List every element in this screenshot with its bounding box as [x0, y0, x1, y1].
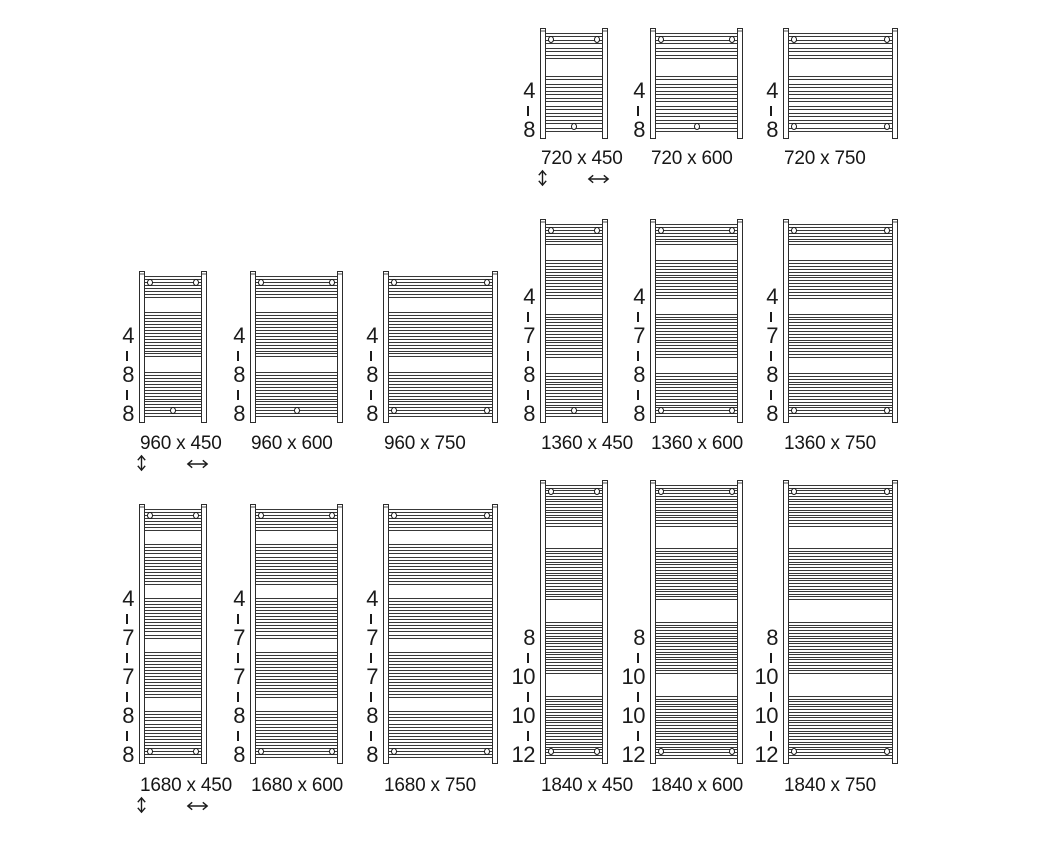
- bar-count-label: 4: [86, 324, 134, 348]
- wall-bracket-icon: [791, 36, 797, 43]
- group-separator-dash: [370, 614, 373, 624]
- rung-bar: [145, 527, 201, 531]
- tube-left: [540, 28, 546, 139]
- rung-bar: [789, 295, 892, 299]
- rung-bar: [546, 295, 602, 299]
- rung-bar: [546, 260, 602, 264]
- rung-bar: [256, 544, 337, 548]
- rung-bar: [145, 312, 201, 316]
- bar-count-label: 7: [86, 626, 134, 650]
- rung-bar: [256, 348, 337, 352]
- rung-bar: [789, 517, 892, 521]
- rung-bar: [389, 544, 492, 548]
- rung-bar: [389, 372, 492, 376]
- rung-bar: [389, 610, 492, 614]
- bar-count-label: 8: [730, 626, 778, 650]
- rung-bar: [789, 591, 892, 595]
- rung-bar: [256, 336, 337, 340]
- rung-bar: [546, 84, 602, 88]
- rung-bar: [546, 373, 602, 377]
- wall-bracket-icon: [571, 407, 577, 414]
- rung-bar: [256, 652, 337, 656]
- rung-bar: [389, 724, 492, 728]
- rung-bar: [145, 372, 201, 376]
- rung-bar: [789, 553, 892, 557]
- rung-bar: [256, 569, 337, 573]
- rung-bar: [145, 288, 201, 292]
- rung-bar: [656, 295, 737, 299]
- rung-bar: [656, 266, 737, 270]
- rung-bar: [145, 616, 201, 620]
- bar-count-column: 488: [330, 271, 378, 423]
- rung-bar: [656, 384, 737, 388]
- rung-bar: [546, 266, 602, 270]
- radiator-960x750: [383, 271, 498, 423]
- rung-bar: [256, 342, 337, 346]
- rung-bar: [256, 372, 337, 376]
- rung-bar: [256, 742, 337, 746]
- rung-bar: [546, 396, 602, 400]
- rung-bar: [656, 501, 737, 505]
- bar-count-label: 10: [730, 665, 778, 689]
- bar-count-column: 488: [86, 271, 134, 423]
- bar-count-label: 8: [330, 704, 378, 728]
- rung-bar: [789, 749, 892, 753]
- size-label: 1360 x 600: [651, 433, 743, 455]
- rung-bar: [546, 496, 602, 500]
- rung-bar: [656, 407, 737, 411]
- rung-bar: [389, 682, 492, 686]
- rung-bar: [145, 276, 201, 280]
- rung-bar: [789, 277, 892, 281]
- rung-bar: [656, 722, 737, 726]
- rung-bar: [789, 570, 892, 574]
- bar-count-label: 4: [597, 79, 645, 103]
- rung-bar: [145, 544, 201, 548]
- rung-bar: [546, 596, 602, 600]
- group-separator-dash: [770, 692, 773, 702]
- rung-bar: [789, 106, 892, 110]
- rung-bar: [256, 527, 337, 531]
- rung-bar: [145, 413, 201, 417]
- bar-count-label: 4: [330, 587, 378, 611]
- rung-bar: [656, 638, 737, 642]
- wall-bracket-icon: [658, 36, 664, 43]
- bar-count-column: 8101012: [487, 480, 535, 764]
- rung-bar: [789, 638, 892, 642]
- size-label: 1840 x 450: [541, 775, 633, 797]
- rung-bar: [789, 48, 892, 52]
- tube-left: [139, 271, 145, 423]
- bar-count-label: 12: [597, 743, 645, 767]
- rung-bar: [145, 730, 201, 734]
- rung-bar: [145, 622, 201, 626]
- wall-bracket-icon: [258, 748, 264, 755]
- rung-bar: [389, 598, 492, 602]
- rung-bar: [656, 665, 737, 669]
- group-separator-dash: [527, 653, 530, 663]
- wall-bracket-icon: [391, 748, 397, 755]
- tube-cap: [784, 221, 788, 223]
- rung-bar: [656, 283, 737, 287]
- rung-bar: [546, 402, 602, 406]
- wall-bracket-icon: [391, 512, 397, 519]
- rung-bar: [656, 733, 737, 737]
- wall-bracket-icon: [884, 227, 890, 234]
- size-label: 720 x 750: [784, 148, 866, 170]
- bar-count-label: 7: [597, 324, 645, 348]
- tube-cap: [251, 273, 255, 275]
- rung-bar: [789, 596, 892, 600]
- bar-count-column: 8101012: [730, 480, 778, 764]
- tube-left: [650, 480, 656, 764]
- rung-bar: [656, 575, 737, 579]
- rung-bar: [656, 485, 737, 489]
- bar-count-label: 8: [730, 118, 778, 142]
- rung-bar: [546, 728, 602, 732]
- bar-count-label: 8: [487, 626, 535, 650]
- rung-bar: [546, 485, 602, 489]
- wall-bracket-icon: [694, 123, 700, 130]
- bar-count-label: 8: [487, 118, 535, 142]
- rung-bar: [546, 501, 602, 505]
- rung-bar: [389, 312, 492, 316]
- group-separator-dash: [237, 351, 240, 361]
- rung-bar: [789, 384, 892, 388]
- rung-bar: [789, 84, 892, 88]
- bar-count-label: 8: [597, 626, 645, 650]
- rung-bar: [389, 730, 492, 734]
- rung-bar: [256, 628, 337, 632]
- rung-bar: [145, 509, 201, 513]
- rung-bar: [789, 314, 892, 318]
- rung-bar: [789, 230, 892, 234]
- rung-bar: [656, 717, 737, 721]
- rung-bar: [256, 401, 337, 405]
- diagram-stage: 48720 x 45048720 x 60048720 x 750488960 …: [0, 0, 1044, 854]
- tube-cap: [541, 221, 545, 223]
- rung-bar: [656, 40, 737, 44]
- rung-bar: [389, 569, 492, 573]
- group-separator-dash: [237, 390, 240, 400]
- group-separator-dash: [637, 312, 640, 322]
- rung-bar: [389, 676, 492, 680]
- width-arrow-icon: [587, 173, 610, 185]
- rung-bar: [389, 581, 492, 585]
- rung-bar: [389, 694, 492, 698]
- rung-bar: [145, 676, 201, 680]
- rung-bar: [656, 591, 737, 595]
- rung-bar: [789, 55, 892, 59]
- rung-bar: [546, 106, 602, 110]
- rung-bar: [256, 550, 337, 554]
- height-arrow-icon: [536, 169, 549, 187]
- rung-bar: [256, 515, 337, 519]
- rung-bar: [145, 348, 201, 352]
- bar-count-label: 10: [597, 704, 645, 728]
- rung-bar: [789, 512, 892, 516]
- wall-bracket-icon: [884, 488, 890, 495]
- bar-count-label: 10: [487, 704, 535, 728]
- rung-bar: [256, 616, 337, 620]
- rung-bar: [546, 654, 602, 658]
- rung-bar: [145, 652, 201, 656]
- rung-bar: [656, 670, 737, 674]
- rung-bar: [546, 712, 602, 716]
- bar-count-label: 4: [487, 79, 535, 103]
- size-label: 960 x 750: [384, 433, 466, 455]
- tube-cap: [651, 482, 655, 484]
- rung-bar: [145, 717, 201, 721]
- size-label: 1360 x 450: [541, 433, 633, 455]
- size-label: 720 x 600: [651, 148, 733, 170]
- rung-bar: [789, 654, 892, 658]
- rung-bar: [656, 241, 737, 245]
- rung-bar: [789, 701, 892, 705]
- rung-bar: [789, 325, 892, 329]
- rung-bar: [546, 701, 602, 705]
- rung-bar: [656, 76, 737, 80]
- group-separator-dash: [527, 390, 530, 400]
- rung-bar: [789, 91, 892, 95]
- rung-bar: [256, 604, 337, 608]
- rung-bar: [389, 407, 492, 411]
- rung-bar: [789, 728, 892, 732]
- rung-bar: [789, 337, 892, 341]
- rung-bar: [546, 517, 602, 521]
- rung-bar: [389, 742, 492, 746]
- rung-bar: [256, 688, 337, 692]
- rung-bar: [789, 120, 892, 124]
- rung-bar: [656, 236, 737, 240]
- tube-cap: [784, 30, 788, 32]
- bar-count-label: 10: [597, 665, 645, 689]
- rung-bar: [656, 33, 737, 37]
- rung-bar: [389, 550, 492, 554]
- rung-bar: [656, 633, 737, 637]
- group-separator-dash: [527, 312, 530, 322]
- group-separator-dash: [637, 390, 640, 400]
- rung-bar: [145, 724, 201, 728]
- bar-count-label: 8: [86, 743, 134, 767]
- rung-bar: [389, 396, 492, 400]
- rung-bar: [546, 277, 602, 281]
- rung-bar: [145, 390, 201, 394]
- wall-bracket-icon: [571, 123, 577, 130]
- rung-bar: [546, 638, 602, 642]
- tube-right: [892, 219, 898, 423]
- group-separator-dash: [126, 731, 129, 741]
- bar-count-column: 48: [730, 28, 778, 139]
- rung-bar: [789, 575, 892, 579]
- rung-bar: [145, 336, 201, 340]
- rung-bar: [656, 413, 737, 417]
- group-separator-dash: [637, 106, 640, 116]
- tube-cap: [893, 482, 897, 484]
- rung-bar: [389, 688, 492, 692]
- rung-bar: [256, 610, 337, 614]
- wall-bracket-icon: [791, 123, 797, 130]
- rung-bar: [546, 48, 602, 52]
- rung-bar: [389, 318, 492, 322]
- radiator-1840x750: [783, 480, 898, 764]
- size-label: 1840 x 600: [651, 775, 743, 797]
- bar-count-label: 4: [86, 587, 134, 611]
- rung-bar: [546, 733, 602, 737]
- bar-count-label: 8: [197, 704, 245, 728]
- rung-bar: [145, 324, 201, 328]
- rung-bar: [656, 48, 737, 52]
- bar-count-label: 10: [487, 665, 535, 689]
- bar-count-label: 8: [597, 402, 645, 426]
- bar-count-label: 8: [86, 704, 134, 728]
- rung-bar: [656, 224, 737, 228]
- rung-bar: [789, 490, 892, 494]
- rung-bar: [546, 379, 602, 383]
- rung-bar: [256, 694, 337, 698]
- size-label: 1680 x 600: [251, 775, 343, 797]
- bar-count-label: 8: [487, 363, 535, 387]
- group-separator-dash: [370, 351, 373, 361]
- rung-bar: [256, 312, 337, 316]
- rung-bar: [789, 373, 892, 377]
- rung-bar: [656, 337, 737, 341]
- rung-bar: [656, 55, 737, 59]
- rung-bar: [389, 748, 492, 752]
- rung-bar: [656, 659, 737, 663]
- rung-bar: [546, 717, 602, 721]
- wall-bracket-icon: [658, 407, 664, 414]
- rung-bar: [389, 575, 492, 579]
- rung-bar: [145, 384, 201, 388]
- rung-bar: [546, 236, 602, 240]
- rung-bar: [656, 701, 737, 705]
- tube-left: [250, 271, 256, 423]
- bar-count-column: 48: [597, 28, 645, 139]
- rung-bar: [656, 230, 737, 234]
- rung-bar: [546, 55, 602, 59]
- rung-bar: [145, 575, 201, 579]
- rung-bar: [546, 564, 602, 568]
- wall-bracket-icon: [147, 512, 153, 519]
- bar-count-label: 7: [487, 324, 535, 348]
- rung-bar: [256, 664, 337, 668]
- rung-bar: [656, 277, 737, 281]
- rung-bar: [546, 627, 602, 631]
- group-separator-dash: [527, 731, 530, 741]
- rung-bar: [256, 294, 337, 298]
- size-label: 1680 x 450: [140, 775, 232, 797]
- tube-left: [540, 480, 546, 764]
- bar-count-label: 8: [597, 118, 645, 142]
- rung-bar: [656, 348, 737, 352]
- rung-bar: [546, 325, 602, 329]
- rung-bar: [389, 348, 492, 352]
- bar-count-label: 4: [730, 79, 778, 103]
- bar-count-column: 4788: [487, 219, 535, 423]
- rung-bar: [789, 627, 892, 631]
- rung-bar: [656, 373, 737, 377]
- rung-bar: [789, 289, 892, 293]
- wall-bracket-icon: [258, 279, 264, 286]
- wall-bracket-icon: [658, 748, 664, 755]
- wall-bracket-icon: [548, 748, 554, 755]
- rung-bar: [256, 622, 337, 626]
- rung-bar: [546, 354, 602, 358]
- rung-bar: [546, 384, 602, 388]
- rung-bar: [789, 580, 892, 584]
- height-arrow-icon: [135, 454, 148, 472]
- group-separator-dash: [527, 351, 530, 361]
- rung-bar: [656, 507, 737, 511]
- rung-bar: [145, 610, 201, 614]
- rung-bar: [145, 563, 201, 567]
- rung-bar: [789, 113, 892, 117]
- rung-bar: [389, 521, 492, 525]
- rung-bar: [389, 324, 492, 328]
- tube-cap: [251, 506, 255, 508]
- rung-bar: [789, 717, 892, 721]
- group-separator-dash: [126, 653, 129, 663]
- rung-bar: [656, 91, 737, 95]
- rung-bar: [789, 407, 892, 411]
- rung-bar: [656, 402, 737, 406]
- group-separator-dash: [637, 351, 640, 361]
- rung-bar: [546, 739, 602, 743]
- width-arrow-icon: [186, 458, 209, 470]
- rung-bar: [789, 76, 892, 80]
- tube-cap: [384, 273, 388, 275]
- tube-left: [650, 28, 656, 139]
- rung-bar: [789, 33, 892, 37]
- bar-count-label: 4: [197, 324, 245, 348]
- bar-count-label: 4: [597, 285, 645, 309]
- rung-bar: [789, 283, 892, 287]
- rung-bar: [789, 712, 892, 716]
- group-separator-dash: [126, 692, 129, 702]
- rung-bar: [789, 236, 892, 240]
- rung-bar: [389, 628, 492, 632]
- rung-bar: [546, 413, 602, 417]
- tube-cap: [893, 30, 897, 32]
- rung-bar: [656, 325, 737, 329]
- rung-bar: [546, 591, 602, 595]
- rung-bar: [656, 289, 737, 293]
- rung-bar: [256, 378, 337, 382]
- radiator-1360x750: [783, 219, 898, 423]
- rung-bar: [256, 521, 337, 525]
- rung-bar: [256, 670, 337, 674]
- rung-bar: [656, 553, 737, 557]
- bar-count-label: 8: [487, 402, 535, 426]
- height-arrow-icon: [135, 796, 148, 814]
- rung-bar: [145, 342, 201, 346]
- rung-bar: [546, 283, 602, 287]
- wall-bracket-icon: [147, 748, 153, 755]
- rung-bar: [389, 717, 492, 721]
- bar-count-column: 47788: [86, 504, 134, 764]
- rung-bar: [656, 627, 737, 631]
- rung-bar: [256, 682, 337, 686]
- rung-bar: [656, 512, 737, 516]
- rung-bar: [389, 509, 492, 513]
- rung-bar: [389, 336, 492, 340]
- rung-bar: [656, 396, 737, 400]
- rung-bar: [546, 241, 602, 245]
- rung-bar: [656, 586, 737, 590]
- group-separator-dash: [237, 692, 240, 702]
- rung-bar: [789, 98, 892, 102]
